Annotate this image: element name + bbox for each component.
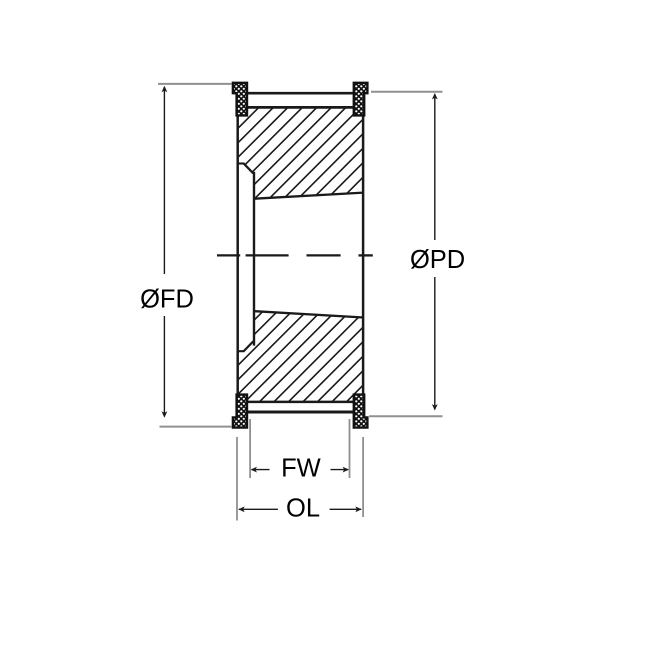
svg-text:FW: FW bbox=[281, 455, 321, 483]
svg-text:OL: OL bbox=[286, 495, 320, 523]
svg-text:ØFD: ØFD bbox=[140, 286, 194, 314]
svg-text:ØPD: ØPD bbox=[410, 246, 465, 274]
